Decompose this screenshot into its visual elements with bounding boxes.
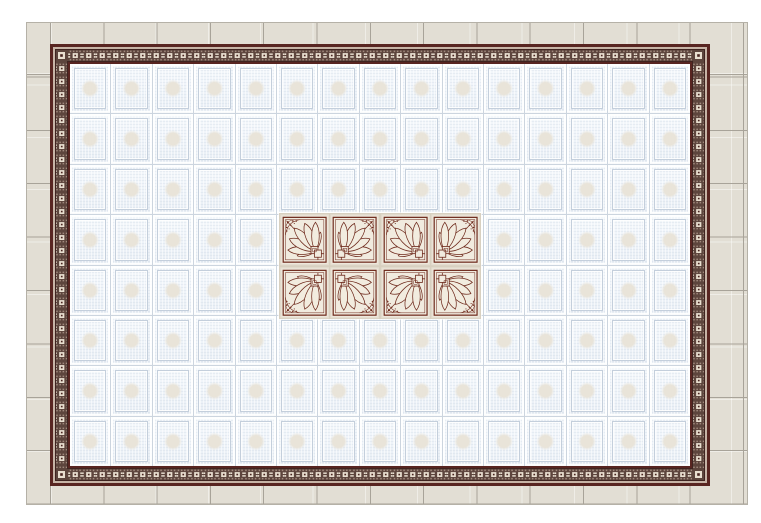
field-tile [153, 266, 193, 315]
field-tile [70, 215, 110, 264]
field-tile [153, 417, 193, 466]
field-tile [360, 165, 400, 214]
field-tile [236, 165, 276, 214]
field-tile [567, 366, 607, 415]
field-tile [567, 64, 607, 113]
field-tile [650, 266, 690, 315]
field-tile [567, 114, 607, 163]
field-tile [194, 417, 234, 466]
field-tile [443, 114, 483, 163]
field-tile [484, 215, 524, 264]
field-tile [525, 266, 565, 315]
field-tile [567, 316, 607, 365]
field-tile [70, 114, 110, 163]
field-tile [525, 366, 565, 415]
field-tile [111, 165, 151, 214]
center-decor-inset [279, 213, 481, 319]
field-tile [401, 316, 441, 365]
field-tile [277, 64, 317, 113]
field-tile [401, 64, 441, 113]
field-tile [70, 266, 110, 315]
field-tile [70, 366, 110, 415]
field-tile [484, 165, 524, 214]
field-tile [194, 215, 234, 264]
field-tile [525, 165, 565, 214]
field-tile [525, 316, 565, 365]
field-tile [650, 165, 690, 214]
field-tile [360, 417, 400, 466]
field-tile [401, 165, 441, 214]
field-tile [236, 64, 276, 113]
field-tile [194, 114, 234, 163]
field-tile [525, 114, 565, 163]
field-tile [153, 114, 193, 163]
field-tile [318, 165, 358, 214]
field-tile [484, 316, 524, 365]
field-tile [608, 316, 648, 365]
field-tile [650, 64, 690, 113]
decor-tile [330, 267, 379, 319]
field-tile [525, 417, 565, 466]
field-tile [443, 64, 483, 113]
tile-room-render [0, 0, 761, 523]
field-tile [567, 165, 607, 214]
field-tile [153, 64, 193, 113]
field-tile [277, 417, 317, 466]
field-tile [401, 114, 441, 163]
field-tile [236, 266, 276, 315]
field-tile [318, 316, 358, 365]
field-tile [443, 316, 483, 365]
field-tile [236, 417, 276, 466]
field-tile [318, 114, 358, 163]
field-tile [153, 316, 193, 365]
field-tile [153, 165, 193, 214]
field-tile [443, 165, 483, 214]
field-tile [277, 366, 317, 415]
field-tile [608, 165, 648, 214]
field-tile [360, 316, 400, 365]
field-tile [608, 114, 648, 163]
field-tile [608, 266, 648, 315]
field-tile [650, 417, 690, 466]
decor-tile [330, 214, 379, 266]
field-tile [484, 266, 524, 315]
field-tile [194, 165, 234, 214]
field-tile [236, 215, 276, 264]
field-tile [318, 366, 358, 415]
field-tile [70, 417, 110, 466]
field-tile [153, 215, 193, 264]
field-tile [277, 165, 317, 214]
field-tile [608, 64, 648, 113]
field-tile [111, 114, 151, 163]
field-tile [360, 114, 400, 163]
field-tile [111, 417, 151, 466]
field-tile [401, 366, 441, 415]
field-tile [360, 64, 400, 113]
decor-tile [381, 267, 430, 319]
field-tile [443, 366, 483, 415]
field-tile [236, 316, 276, 365]
field-tile [70, 316, 110, 365]
field-tile [567, 215, 607, 264]
field-tile [111, 366, 151, 415]
field-tile [111, 215, 151, 264]
field-tile [650, 366, 690, 415]
field-tile [153, 366, 193, 415]
field-tile [484, 417, 524, 466]
decor-tile [431, 214, 480, 266]
field-tile [525, 64, 565, 113]
field-tile [318, 64, 358, 113]
field-tile [318, 417, 358, 466]
field-tile [236, 114, 276, 163]
field-tile [194, 64, 234, 113]
field-tile [401, 417, 441, 466]
field-tile [194, 316, 234, 365]
field-tile [443, 417, 483, 466]
field-tile [194, 366, 234, 415]
field-tile [111, 64, 151, 113]
field-tile [608, 366, 648, 415]
decor-tile [280, 214, 329, 266]
field-tile [608, 417, 648, 466]
field-tile [277, 316, 317, 365]
field-tile [650, 215, 690, 264]
field-tile [70, 64, 110, 113]
field-tile [567, 266, 607, 315]
field-tile [484, 114, 524, 163]
decor-tile [381, 214, 430, 266]
field-tile [484, 366, 524, 415]
field-tile [650, 316, 690, 365]
field-tile [525, 215, 565, 264]
field-tile [277, 114, 317, 163]
field-tile [567, 417, 607, 466]
field-tile [111, 316, 151, 365]
field-tile [70, 165, 110, 214]
field-tile [236, 366, 276, 415]
field-tile [608, 215, 648, 264]
field-tile [360, 366, 400, 415]
decor-tile [280, 267, 329, 319]
field-tile [484, 64, 524, 113]
field-tile [194, 266, 234, 315]
field-tile [650, 114, 690, 163]
field-tile [111, 266, 151, 315]
decor-tile [431, 267, 480, 319]
